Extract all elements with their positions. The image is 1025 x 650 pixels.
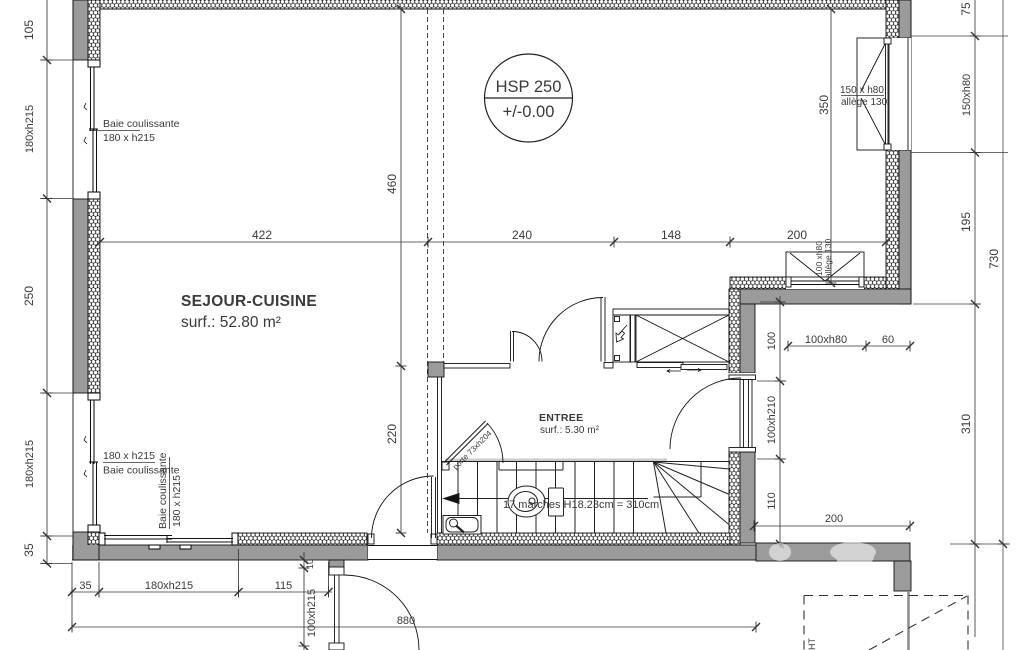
svg-text:100: 100 <box>766 332 778 350</box>
svg-text:surf.: 5.30 m²: surf.: 5.30 m² <box>540 425 600 436</box>
svg-text:180 x h215: 180 x h215 <box>171 475 183 527</box>
svg-text:17 marches H18.23cm = 310cm: 17 marches H18.23cm = 310cm <box>503 499 659 511</box>
svg-text:HSP 250: HSP 250 <box>496 78 562 96</box>
svg-text:10: 10 <box>305 559 315 569</box>
svg-text:460: 460 <box>385 174 399 194</box>
svg-text:HT: HT <box>807 638 817 650</box>
svg-text:180 x h215: 180 x h215 <box>103 450 155 462</box>
svg-text:730: 730 <box>987 249 1001 269</box>
svg-text:200: 200 <box>825 513 843 525</box>
svg-text:150 x h80: 150 x h80 <box>840 85 884 96</box>
svg-text:surf.: 52.80 m²: surf.: 52.80 m² <box>181 314 281 331</box>
svg-text:60: 60 <box>882 334 894 346</box>
svg-text:148: 148 <box>661 228 681 242</box>
svg-text:240: 240 <box>512 228 532 242</box>
svg-text:Baie coulissante: Baie coulissante <box>157 452 169 529</box>
svg-text:allège 130: allège 130 <box>823 238 833 278</box>
svg-text:75: 75 <box>959 2 973 16</box>
svg-text:Baie coulissante: Baie coulissante <box>103 118 180 130</box>
svg-text:250: 250 <box>22 286 36 306</box>
svg-text:195: 195 <box>959 212 973 232</box>
svg-text:100xh80: 100xh80 <box>805 334 847 346</box>
svg-text:180xh215: 180xh215 <box>145 580 193 592</box>
svg-text:SEJOUR-CUISINE: SEJOUR-CUISINE <box>181 293 317 310</box>
svg-text:880: 880 <box>397 615 415 627</box>
svg-text:180xh215: 180xh215 <box>24 440 36 488</box>
svg-text:310: 310 <box>959 414 973 434</box>
svg-text:110: 110 <box>766 492 778 510</box>
svg-text:+/-0.00: +/-0.00 <box>503 103 555 121</box>
svg-text:350: 350 <box>817 95 831 115</box>
svg-text:35: 35 <box>22 543 36 557</box>
svg-text:115: 115 <box>275 580 293 592</box>
svg-text:180xh215: 180xh215 <box>24 105 36 153</box>
svg-text:100xh215: 100xh215 <box>306 589 318 637</box>
svg-text:200: 200 <box>787 228 807 242</box>
svg-text:150xh80: 150xh80 <box>961 74 973 116</box>
svg-text:allège 130: allège 130 <box>841 97 888 108</box>
svg-text:180 x h215: 180 x h215 <box>103 132 155 144</box>
svg-text:35: 35 <box>79 580 91 592</box>
svg-text:220: 220 <box>385 424 399 444</box>
svg-text:ENTREE: ENTREE <box>539 412 583 424</box>
svg-text:105: 105 <box>22 20 36 40</box>
svg-text:422: 422 <box>252 228 272 242</box>
svg-text:100xh210: 100xh210 <box>766 396 778 444</box>
